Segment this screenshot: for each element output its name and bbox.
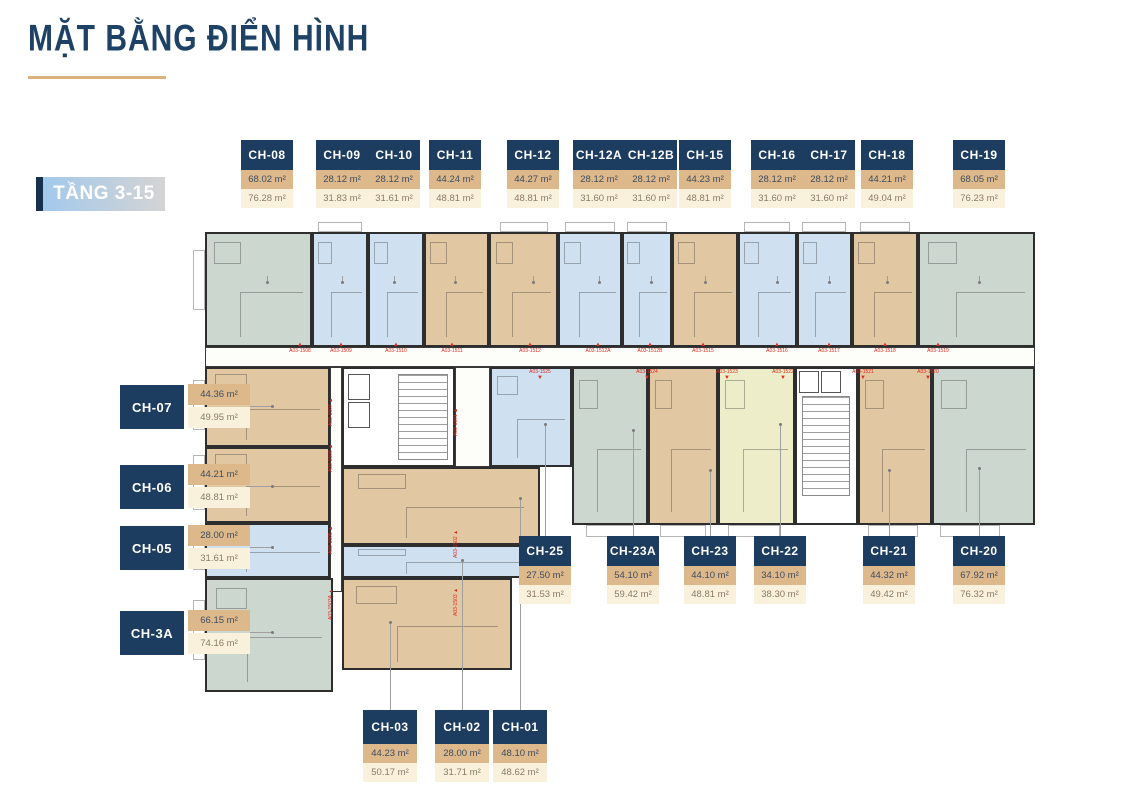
balcony [802, 222, 846, 232]
unit-card-name: CH-07 [120, 385, 184, 429]
plan-marker: ▲A03-1518 [874, 342, 896, 354]
unit-card-area-2: 31.60 m² [803, 189, 855, 208]
unit-card-area-1: 28.12 m² [368, 170, 420, 189]
leader-line [520, 498, 521, 710]
unit-ch-08 [205, 232, 312, 347]
unit-card-ch-01: CH-0148.10 m²48.62 m² [493, 710, 547, 782]
unit-card-area-1: 44.32 m² [863, 566, 915, 585]
balcony [860, 222, 910, 232]
unit-card-area-2: 48.81 m² [684, 585, 736, 604]
plan-marker: A03-1507 ▲ [328, 398, 334, 426]
unit-card-name: CH-15 [679, 140, 731, 170]
leader-dot [978, 281, 981, 284]
unit-ch-25 [490, 367, 572, 467]
leader-dot [544, 423, 547, 426]
balcony [318, 222, 362, 232]
plan-marker: ▲A03-1509 [330, 342, 352, 354]
unit-card-ch-10: CH-1028.12 m²31.61 m² [368, 140, 420, 208]
plan-marker: A03-1524▼ [636, 369, 658, 381]
elevator-2 [348, 402, 370, 428]
unit-card-ch-12b: CH-12B28.12 m²31.60 m² [625, 140, 677, 208]
unit-ch-23 [648, 367, 718, 525]
leader-dot [779, 423, 782, 426]
unit-card-area-2: 31.60 m² [573, 189, 625, 208]
plan-marker: A03-1522▼ [772, 369, 794, 381]
unit-card-name: CH-3A [120, 611, 184, 655]
leader-dot [266, 281, 269, 284]
unit-card-ch-03: CH-0344.23 m²50.17 m² [363, 710, 417, 782]
leader-line [462, 560, 463, 710]
unit-card-area-2: 76.28 m² [241, 189, 293, 208]
unit-card-area-1: 28.12 m² [751, 170, 803, 189]
leader-dot [393, 281, 396, 284]
plan-marker: ▲A03-1510 [385, 342, 407, 354]
unit-card-area-2: 31.60 m² [751, 189, 803, 208]
plan-marker: ▲A03-1508 [289, 342, 311, 354]
unit-card-area-1: 28.00 m² [188, 525, 250, 546]
unit-card-name: CH-11 [429, 140, 481, 170]
unit-ch-19 [918, 232, 1035, 347]
unit-card-area-1: 68.02 m² [241, 170, 293, 189]
unit-card-ch-19: CH-1968.05 m²76.23 m² [953, 140, 1005, 208]
unit-card-area-2: 59.42 m² [607, 585, 659, 604]
stairs-main [398, 374, 448, 460]
leader-line [545, 424, 546, 536]
leader-dot [519, 497, 522, 500]
unit-card-area-1: 28.12 m² [316, 170, 368, 189]
unit-card-area-2: 48.62 m² [493, 763, 547, 782]
unit-ch-11 [424, 232, 489, 347]
plan-marker: ▲A03-1511 [441, 342, 462, 354]
unit-card-area-1: 34.10 m² [754, 566, 806, 585]
unit-card-area-1: 28.12 m² [803, 170, 855, 189]
plan-marker: ▲A03-1516 [766, 342, 788, 354]
leader-line [250, 486, 272, 487]
leader-line [250, 547, 272, 548]
plan-marker: ▲A03-1512 [519, 342, 541, 354]
unit-card-area-2: 76.23 m² [953, 189, 1005, 208]
leader-dot [461, 559, 464, 562]
unit-card-area-1: 28.12 m² [573, 170, 625, 189]
leader-dot [709, 469, 712, 472]
unit-card-name: CH-09 [316, 140, 368, 170]
unit-card-area-1: 44.24 m² [429, 170, 481, 189]
plan-marker: ▲A03-1517 [818, 342, 840, 354]
unit-card-area-1: 48.10 m² [493, 744, 547, 763]
unit-card-name: CH-03 [363, 710, 417, 744]
leader-dot [271, 546, 274, 549]
unit-ch-02 [342, 545, 540, 578]
leader-line [780, 424, 781, 536]
unit-card-area-1: 28.12 m² [625, 170, 677, 189]
plan-marker: A03-1503 ▲ [453, 588, 459, 616]
plan-marker: A03-1503A ▲ [328, 589, 334, 620]
unit-card-area-1: 66.15 m² [188, 610, 250, 631]
unit-card-area-1: 44.36 m² [188, 384, 250, 405]
unit-card-area-2: 49.95 m² [188, 407, 250, 428]
unit-ch-16 [738, 232, 797, 347]
unit-ch-17 [797, 232, 852, 347]
unit-ch-20 [932, 367, 1035, 525]
unit-ch-12a [558, 232, 622, 347]
leader-line [250, 632, 272, 633]
unit-card-area-2: 48.81 m² [188, 487, 250, 508]
balcony [565, 222, 615, 232]
unit-card-area-2: 31.71 m² [435, 763, 489, 782]
unit-ch-03 [342, 578, 512, 670]
leader-dot [888, 469, 891, 472]
unit-card-area-1: 44.23 m² [363, 744, 417, 763]
elevator-1 [348, 374, 370, 400]
unit-card-ch-18: CH-1844.21 m²49.04 m² [861, 140, 913, 208]
unit-card-area-1: 44.23 m² [679, 170, 731, 189]
unit-card-name: CH-17 [803, 140, 855, 170]
plan-marker: ▲A03-1512A [585, 342, 610, 354]
unit-card-name: CH-12B [625, 140, 677, 170]
unit-card-name: CH-21 [863, 536, 915, 566]
leader-dot [776, 281, 779, 284]
unit-card-area-1: 67.92 m² [953, 566, 1005, 585]
unit-card-name: CH-18 [861, 140, 913, 170]
leader-dot [598, 281, 601, 284]
unit-card-ch-20: CH-2067.92 m²76.32 m² [953, 536, 1005, 604]
elevator-4 [821, 371, 841, 393]
unit-card-ch-21: CH-2144.32 m²49.42 m² [863, 536, 915, 604]
unit-card-area-2: 31.83 m² [316, 189, 368, 208]
unit-card-ch-16: CH-1628.12 m²31.60 m² [751, 140, 803, 208]
unit-card-area-2: 31.60 m² [625, 189, 677, 208]
unit-card-area-2: 74.16 m² [188, 633, 250, 654]
unit-card-name: CH-20 [953, 536, 1005, 566]
unit-ch-06 [205, 447, 330, 523]
unit-card-area-2: 48.81 m² [507, 189, 559, 208]
unit-card-area-1: 68.05 m² [953, 170, 1005, 189]
leader-dot [704, 281, 707, 284]
unit-card-area-2: 48.81 m² [679, 189, 731, 208]
leader-line [250, 406, 272, 407]
floor-plan-page: MẶT BẰNG ĐIỂN HÌNH TẦNG 3-15 ▲A03-1508▲A… [0, 0, 1144, 800]
plan-marker: A03-1521▼ [852, 369, 874, 381]
unit-ch-09 [312, 232, 368, 347]
plan-marker: ▲A03-1519 [927, 342, 949, 354]
unit-ch-10 [368, 232, 424, 347]
unit-ch-12b [622, 232, 672, 347]
leader-dot [886, 281, 889, 284]
unit-card-area-1: 27.50 m² [519, 566, 571, 585]
leader-line [979, 468, 980, 536]
unit-ch-01 [342, 467, 540, 545]
balcony [744, 222, 790, 232]
unit-card-ch-02: CH-0228.00 m²31.71 m² [435, 710, 489, 782]
leader-line [633, 430, 634, 536]
leader-dot [271, 405, 274, 408]
unit-card-ch-11: CH-1144.24 m²48.81 m² [429, 140, 481, 208]
leader-dot [271, 485, 274, 488]
unit-card-ch-12a: CH-12A28.12 m²31.60 m² [573, 140, 625, 208]
unit-card-name: CH-19 [953, 140, 1005, 170]
leader-dot [532, 281, 535, 284]
leader-line [710, 470, 711, 536]
leader-dot [650, 281, 653, 284]
stairs-mid [802, 396, 850, 496]
unit-card-area-2: 49.04 m² [861, 189, 913, 208]
unit-card-area-1: 44.10 m² [684, 566, 736, 585]
unit-card-ch-08: CH-0868.02 m²76.28 m² [241, 140, 293, 208]
leader-dot [632, 429, 635, 432]
unit-ch-21 [858, 367, 932, 525]
unit-ch-12 [489, 232, 558, 347]
unit-ch-23a [572, 367, 648, 525]
plan-marker: A03-1523▼ [716, 369, 738, 381]
unit-card-name: CH-23 [684, 536, 736, 566]
unit-card-area-2: 31.61 m² [188, 548, 250, 569]
plan-marker: A03-1502 ▲ [453, 530, 459, 558]
leader-dot [389, 621, 392, 624]
plan-marker: A03-1505 ▲ [328, 526, 334, 554]
unit-card-name: CH-08 [241, 140, 293, 170]
balcony [193, 250, 205, 310]
unit-card-area-1: 28.00 m² [435, 744, 489, 763]
unit-ch-18 [852, 232, 918, 347]
leader-dot [271, 631, 274, 634]
unit-card-area-2: 38.30 m² [754, 585, 806, 604]
unit-card-area-2: 31.61 m² [368, 189, 420, 208]
unit-card-ch-15: CH-1544.23 m²48.81 m² [679, 140, 731, 208]
leader-dot [978, 467, 981, 470]
unit-card-ch-22: CH-2234.10 m²38.30 m² [754, 536, 806, 604]
unit-ch-22 [718, 367, 795, 525]
unit-card-area-2: 48.81 m² [429, 189, 481, 208]
leader-line [390, 622, 391, 710]
plan-marker: ▲A03-1515 [692, 342, 714, 354]
unit-card-ch-12: CH-1244.27 m²48.81 m² [507, 140, 559, 208]
leader-dot [341, 281, 344, 284]
unit-card-name: CH-02 [435, 710, 489, 744]
leader-line [889, 470, 890, 536]
unit-card-name: CH-10 [368, 140, 420, 170]
unit-card-ch-25: CH-2527.50 m²31.53 m² [519, 536, 571, 604]
unit-card-area-2: 76.32 m² [953, 585, 1005, 604]
unit-card-name: CH-01 [493, 710, 547, 744]
unit-card-area-1: 44.21 m² [188, 464, 250, 485]
plan-marker: A03-1520▼ [917, 369, 939, 381]
unit-ch-15 [672, 232, 738, 347]
unit-card-ch-17: CH-1728.12 m²31.60 m² [803, 140, 855, 208]
balcony [627, 222, 667, 232]
balcony [500, 222, 548, 232]
unit-card-name: CH-22 [754, 536, 806, 566]
unit-card-name: CH-12 [507, 140, 559, 170]
unit-card-area-2: 49.42 m² [863, 585, 915, 604]
plan-marker: A03-1506 ▲ [328, 444, 334, 472]
unit-card-area-1: 44.21 m² [861, 170, 913, 189]
leader-dot [828, 281, 831, 284]
unit-card-area-2: 31.53 m² [519, 585, 571, 604]
elevator-3 [799, 371, 819, 393]
unit-card-ch-23a: CH-23A54.10 m²59.42 m² [607, 536, 659, 604]
unit-card-name: CH-25 [519, 536, 571, 566]
unit-card-name: CH-05 [120, 526, 184, 570]
unit-card-name: CH-23A [607, 536, 659, 566]
plan-marker: A03-1501 ▲ [453, 408, 459, 436]
unit-card-name: CH-16 [751, 140, 803, 170]
unit-card-area-1: 44.27 m² [507, 170, 559, 189]
plan-marker: ▲A03-1512B [637, 342, 662, 354]
unit-card-ch-23: CH-2344.10 m²48.81 m² [684, 536, 736, 604]
unit-card-ch-09: CH-0928.12 m²31.83 m² [316, 140, 368, 208]
leader-dot [454, 281, 457, 284]
unit-card-area-1: 54.10 m² [607, 566, 659, 585]
plan-marker: A03-1525▼ [529, 369, 551, 381]
unit-card-name: CH-12A [573, 140, 625, 170]
unit-card-name: CH-06 [120, 465, 184, 509]
unit-card-area-2: 50.17 m² [363, 763, 417, 782]
corridor-junction [455, 367, 490, 467]
